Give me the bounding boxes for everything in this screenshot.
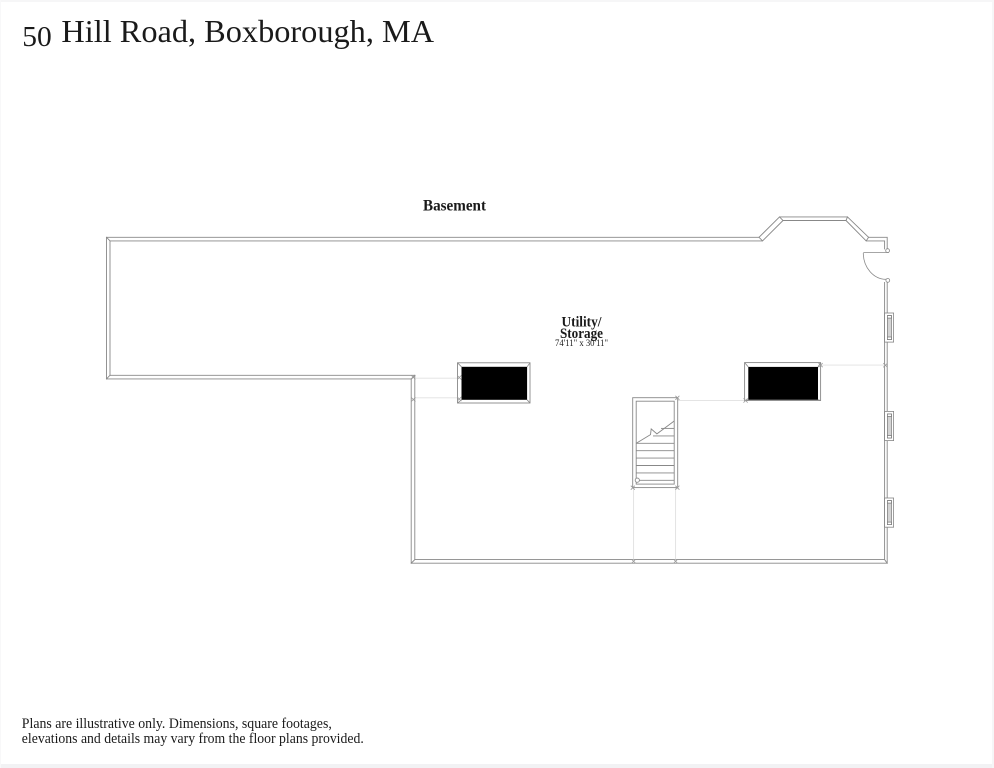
svg-text:74'11" x 30'11": 74'11" x 30'11" xyxy=(555,338,608,349)
svg-text:Plans are illustrative only. D: Plans are illustrative only. Dimensions,… xyxy=(22,716,332,732)
svg-text:elevations and details may var: elevations and details may vary from the… xyxy=(22,731,364,747)
svg-text:Hill Road, Boxborough, MA: Hill Road, Boxborough, MA xyxy=(61,13,434,49)
svg-text:Basement: Basement xyxy=(423,198,487,215)
svg-text:50: 50 xyxy=(22,21,52,53)
